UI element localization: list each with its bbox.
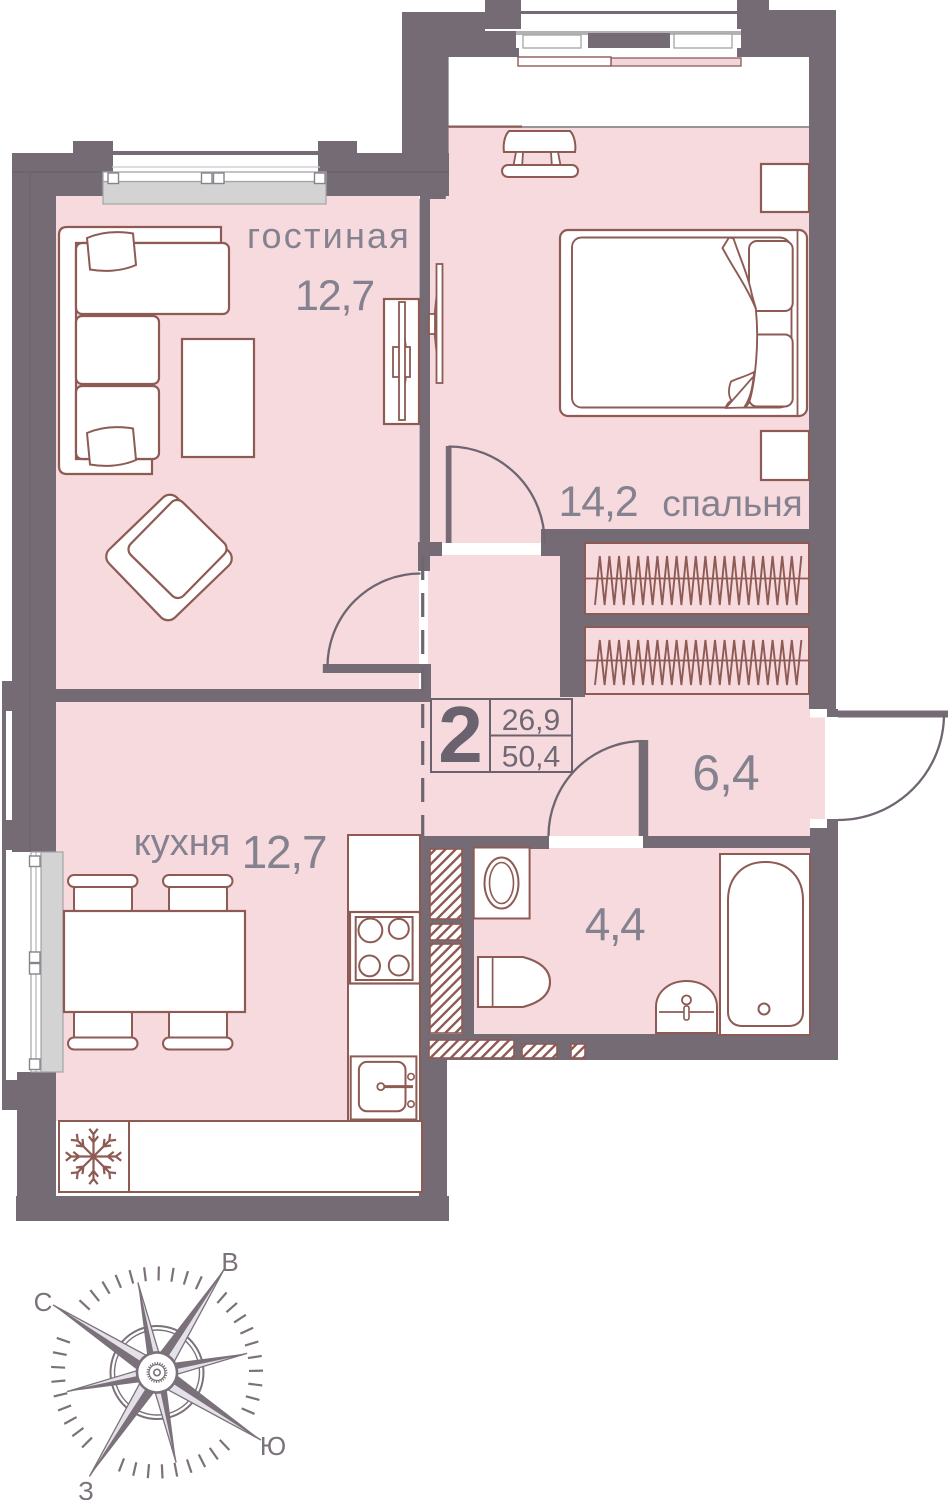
svg-text:50,4: 50,4 [502,741,560,774]
svg-text:6,4: 6,4 [692,745,759,801]
svg-text:26,9: 26,9 [502,704,560,737]
svg-text:Ю: Ю [260,1431,286,1461]
svg-text:4,4: 4,4 [585,898,645,950]
svg-text:З: З [78,1476,94,1500]
svg-text:2: 2 [438,690,483,779]
svg-text:спальня: спальня [662,483,802,524]
svg-text:гостиная: гостиная [247,215,411,256]
svg-text:кухня: кухня [134,822,231,864]
svg-text:14,2: 14,2 [559,478,638,526]
svg-text:12,7: 12,7 [242,826,327,878]
svg-text:С: С [34,1287,53,1317]
svg-text:12,7: 12,7 [295,272,374,320]
svg-text:В: В [221,1247,238,1277]
